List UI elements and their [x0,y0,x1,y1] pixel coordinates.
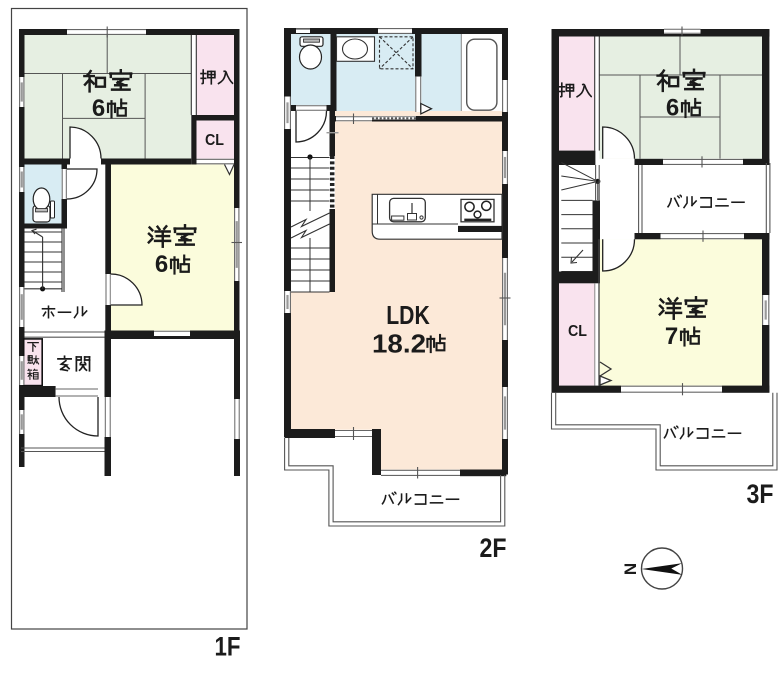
svg-text:6: 6 [155,251,168,278]
svg-text:N: N [621,563,640,575]
svg-text:18.2: 18.2 [372,329,426,359]
svg-text:CL: CL [568,323,587,340]
svg-text:2F: 2F [480,533,507,563]
svg-text:3F: 3F [747,479,774,509]
svg-text:6: 6 [666,95,679,122]
svg-text:1F: 1F [215,632,241,662]
svg-text:CL: CL [205,132,224,149]
svg-text:6: 6 [92,95,105,122]
svg-text:LDK: LDK [386,300,430,330]
svg-text:7: 7 [665,323,678,350]
